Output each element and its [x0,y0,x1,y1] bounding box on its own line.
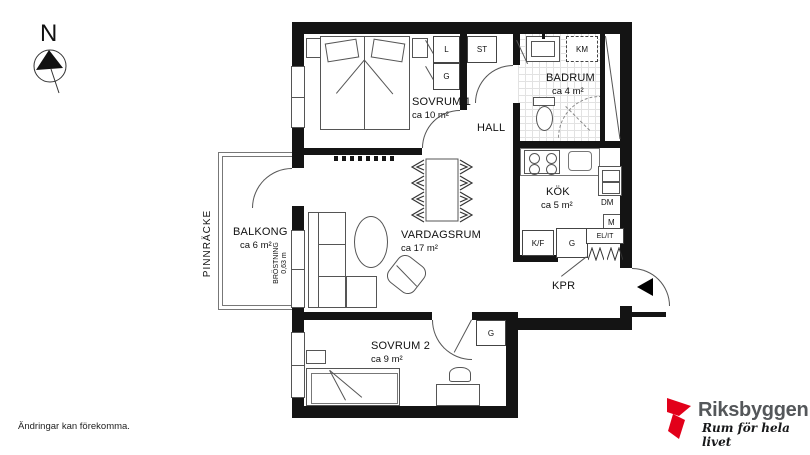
washing-machine: KM [566,36,598,62]
room-label-hall: HALL [477,122,505,134]
wall [292,398,304,418]
washing-machine-label: KM [576,45,588,54]
wall [292,148,422,155]
electrical-label: EL/IT [597,233,614,240]
wall [292,22,632,34]
burner [529,164,540,175]
riksbyggen-logo-icon [664,396,694,440]
burner [546,164,557,175]
room-area-balkong: ca 6 m² [240,240,272,251]
sofa-back-line [318,213,319,307]
sofa-cushion-line [318,276,345,277]
single-bed [306,368,400,406]
room-area-badrum: ca 4 m² [552,86,584,97]
window-mullion [292,365,304,366]
coat-hanger-icon [588,247,604,261]
wall [506,318,518,418]
wall [292,306,304,334]
wardrobe-pointer-line [561,256,587,276]
cleaning-closet-label: ST [477,45,487,54]
desk-chair [449,367,471,382]
oven-detail [602,170,620,182]
brand-tagline: Rum för hela livet [702,421,810,449]
kitchen-tall-cabinet [598,166,622,196]
room-label-kok: KÖK [546,186,570,198]
parapet-height: 0,63 m [281,234,289,292]
room-area-kok: ca 5 m² [541,200,573,211]
electrical-cabinet: EL/IT [586,228,624,244]
desk [436,384,480,406]
room-label-sovrum1: SOVRUM 1 [412,96,471,108]
wall [292,22,304,68]
compass-north-label: N [40,20,57,48]
cleaning-closet: ST [467,36,497,63]
nightstand [306,350,326,364]
floor-plan: N BALKONG ca 6 m² PINNRÄCKE BRÖSTNING 0,… [0,0,810,455]
burner [546,153,557,164]
coffee-table [354,216,388,268]
bathroom-door-arc [475,65,513,103]
wall [472,312,518,320]
room-label-vardagsrum: VARDAGSRUM [401,229,481,241]
wardrobe-kpr-label: G [569,239,575,248]
wall [292,406,518,418]
wall [292,206,304,232]
burner [529,153,540,164]
wall [506,318,632,330]
compass-icon [31,47,71,95]
wall [292,312,432,320]
wall [513,148,520,258]
bathroom-sink-basin [531,41,555,57]
window [291,332,305,398]
wardrobe-sovrum2-label: G [488,329,494,338]
room-area-vardagsrum: ca 17 m² [401,243,438,254]
parapet-label: BRÖSTNING [273,234,281,292]
dishwasher-label: DM [601,198,613,207]
wall [632,312,666,317]
kitchen-sink [568,151,592,171]
room-label-sovrum2: SOVRUM 2 [371,340,430,352]
wardrobe-sovrum2: G [476,320,506,346]
entrance-arrow-icon [637,278,653,296]
fridge-freezer-label: K/F [532,239,544,248]
sofa-cushion-line [318,244,345,245]
toilet-tank [533,97,555,106]
wall [513,34,520,65]
mattress [311,373,398,404]
parapet-annotation: BRÖSTNING 0,63 m [273,234,289,292]
coat-hanger-icon [607,247,623,261]
sofa [308,212,346,308]
armchair-line [396,265,417,287]
wardrobe-kpr: G [556,228,588,258]
window [291,230,305,308]
sink-tap [542,33,545,39]
railing-annotation: PINNRÄCKE [202,196,213,291]
dining-set [398,156,476,226]
wall [513,255,558,262]
linen-closet-label: L [444,45,448,54]
room-label-kpr: KPR [552,280,575,292]
dashed-detail [334,156,394,161]
disclaimer-text: Ändringar kan förekomma. [18,421,130,432]
room-area-sovrum2: ca 9 m² [371,354,403,365]
toilet-bowl [536,106,553,131]
micro-label: M [608,218,615,227]
micro-divider [603,214,604,228]
window-mullion [292,97,304,98]
wardrobe-label: G [443,72,449,81]
wall [513,141,620,148]
room-label-badrum: BADRUM [546,72,595,84]
sofa-chaise [346,276,377,308]
stove [524,150,560,174]
brand-name: Riksbyggen [698,399,808,422]
window-mullion [292,269,304,270]
wardrobe: G [433,63,460,90]
linen-closet: L [433,36,460,63]
window [291,66,305,128]
micro-divider [604,214,620,215]
fridge-freezer: K/F [522,230,554,256]
oven-detail [602,182,620,194]
armchair [383,251,429,297]
bed-split-line [364,36,365,130]
sovrum2-door-arc [432,320,472,360]
